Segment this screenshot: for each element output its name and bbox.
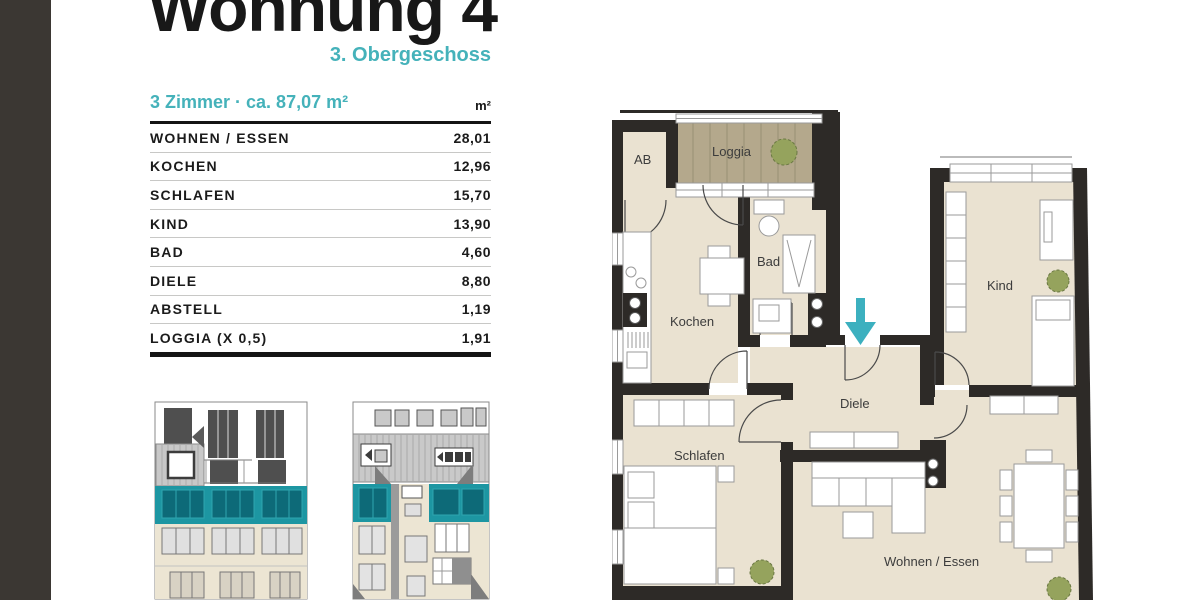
table-caption: 3 Zimmer · ca. 87,07 m² (150, 92, 348, 113)
room-label-bad: Bad (757, 254, 780, 269)
room-area-value: 1,91 (462, 330, 491, 346)
room-label: ABSTELL (150, 301, 223, 317)
room-area-value: 4,60 (462, 244, 491, 260)
room-area-value: 13,90 (453, 216, 491, 232)
plant-icon (750, 560, 774, 584)
room-area-value: 12,96 (453, 158, 491, 174)
highlighted-floor-band (155, 486, 307, 524)
floorplan-drawing: AB Loggia Bad Kochen Kind Diele Schlafen… (612, 100, 1100, 600)
room-label: BAD (150, 244, 184, 260)
room-label: WOHNEN / ESSEN (150, 130, 290, 146)
table-row: ABSTELL 1,19 (150, 296, 491, 325)
left-accent-bar (0, 0, 51, 600)
room-area-value: 28,01 (453, 130, 491, 146)
floor-subtitle: 3. Obergeschoss (150, 44, 491, 67)
table-row: LOGGIA (X 0,5) 1,91 (150, 324, 491, 357)
unit-column-header: m² (475, 98, 491, 113)
plant-icon (1047, 270, 1069, 292)
elevation-roof-band (353, 434, 489, 484)
room-label-schlafen: Schlafen (674, 448, 725, 463)
room-label-wohnen: Wohnen / Essen (884, 554, 979, 569)
table-row: DIELE 8,80 (150, 267, 491, 296)
room-area-value: 8,80 (462, 273, 491, 289)
elevation-lower-floors (155, 524, 307, 599)
table-row: BAD 4,60 (150, 238, 491, 267)
kitchen-counter (623, 232, 651, 383)
table-row: WOHNEN / ESSEN 28,01 (150, 124, 491, 153)
page-title: Wohnung 4 (148, 0, 497, 46)
room-label-kind: Kind (987, 278, 1013, 293)
room-label-kochen: Kochen (670, 314, 714, 329)
table-row: KIND 13,90 (150, 210, 491, 239)
room-label-loggia: Loggia (712, 144, 752, 159)
room-area-value: 15,70 (453, 187, 491, 203)
room-label: SCHLAFEN (150, 187, 236, 203)
table-row: SCHLAFEN 15,70 (150, 181, 491, 210)
expose-page: Wohnung 4 3. Obergeschoss 3 Zimmer · ca.… (0, 0, 1200, 600)
room-label: DIELE (150, 273, 197, 289)
hall-sideboard (810, 432, 898, 448)
plant-icon (771, 139, 797, 165)
highlighted-floor-band (353, 484, 489, 522)
plant-icon (1047, 577, 1071, 600)
room-label: KOCHEN (150, 158, 218, 174)
stairwell-area (840, 112, 920, 335)
room-label: LOGGIA (X 0,5) (150, 330, 267, 346)
room-label: KIND (150, 216, 189, 232)
building-elevation-rear-drawing (345, 396, 510, 600)
room-label-ab: AB (634, 152, 651, 167)
room-area-value: 1,19 (462, 301, 491, 317)
table-row: KOCHEN 12,96 (150, 153, 491, 182)
table-header: 3 Zimmer · ca. 87,07 m² m² (150, 92, 491, 124)
room-area-table: 3 Zimmer · ca. 87,07 m² m² WOHNEN / ESSE… (150, 92, 491, 357)
room-label-diele: Diele (840, 396, 870, 411)
building-elevation-front-drawing (146, 396, 316, 600)
